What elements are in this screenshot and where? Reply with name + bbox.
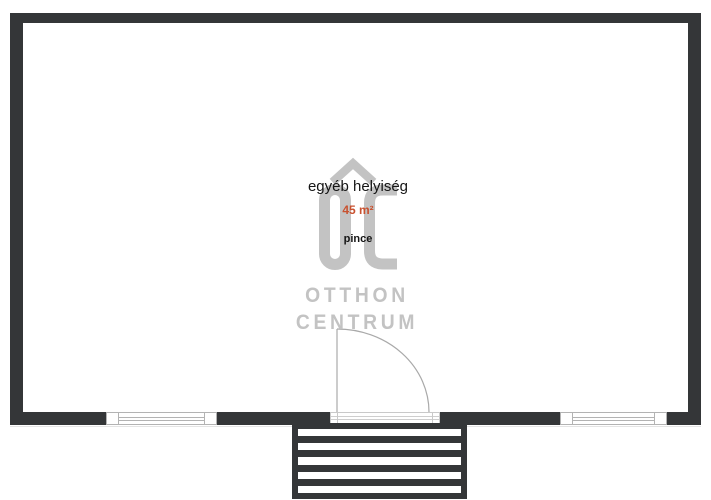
oc-logo-letter-o [325, 190, 346, 265]
wall-bottom-segment-4 [667, 412, 701, 425]
watermark-centrum: CENTRUM [264, 311, 450, 335]
threshold-cap [337, 413, 338, 423]
watermark-otthon: OTTHON [264, 284, 450, 308]
room-level-label: pince [257, 233, 459, 245]
wall-top [10, 13, 701, 23]
room-area-label: 45 m² [257, 203, 459, 217]
window-glass-line [119, 417, 204, 418]
wall-right [688, 13, 701, 425]
window-glass-line [573, 420, 654, 421]
stair-tread [298, 465, 461, 472]
stairs [292, 423, 467, 499]
stair-tread [298, 450, 461, 457]
threshold-line [331, 419, 439, 420]
room-name-label: egyéb helyiség [257, 178, 459, 195]
floor-plan: OTTHON CENTRUM egyéb helyiség 45 m² pinc… [0, 0, 711, 500]
window-glass-line [573, 417, 654, 418]
window-frame-cap [654, 413, 655, 424]
window-right [560, 412, 667, 425]
window-frame-cap [204, 413, 205, 424]
oc-logo-letter-c [370, 190, 398, 264]
window-left [106, 412, 217, 425]
window-frame-cap [118, 413, 119, 424]
door-arc [337, 329, 429, 412]
window-glass-line [119, 420, 204, 421]
threshold-line [331, 416, 439, 417]
threshold-cap [432, 413, 433, 423]
stair-tread [298, 479, 461, 486]
window-frame-cap [572, 413, 573, 424]
wall-bottom-segment-1 [10, 412, 106, 425]
wall-left [10, 13, 23, 425]
stair-tread [298, 436, 461, 443]
